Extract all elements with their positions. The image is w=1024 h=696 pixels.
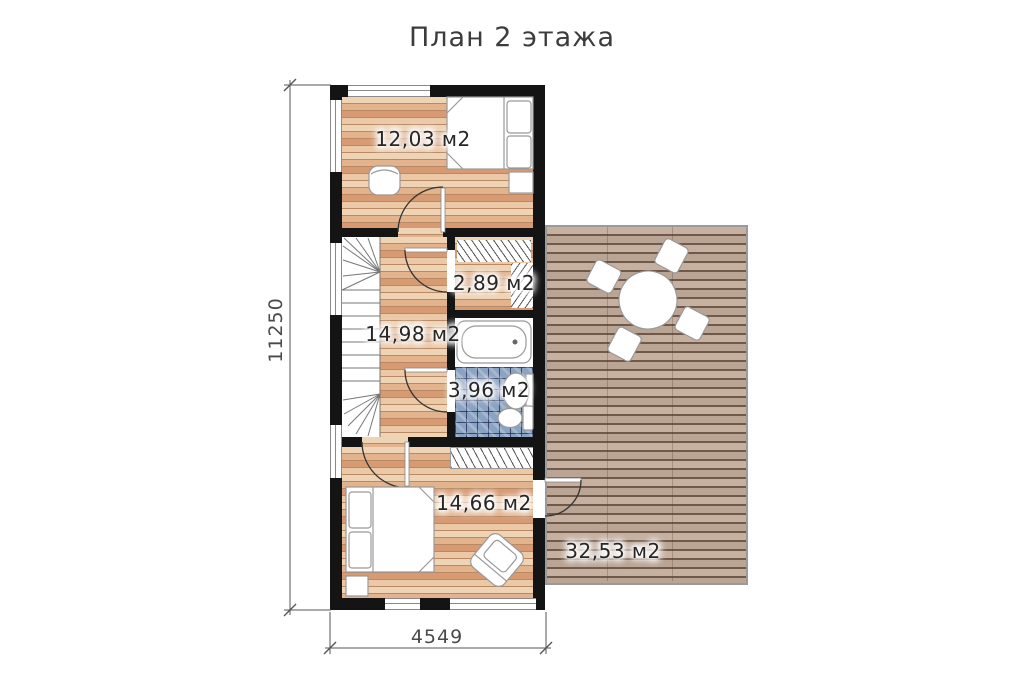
dimension-label-width: 4549: [411, 626, 463, 648]
wall: [430, 85, 545, 97]
deck-seam: [607, 227, 608, 581]
wall: [533, 518, 545, 610]
door-threshold: [362, 437, 408, 447]
wall: [408, 437, 533, 447]
wall: [330, 478, 342, 610]
window: [385, 598, 420, 610]
bathroom-tub-zone: [455, 318, 533, 367]
room-label-terrace: 32,53 м2: [565, 539, 660, 563]
wall: [420, 598, 450, 610]
closet-hatch: [450, 447, 535, 469]
window: [330, 425, 342, 478]
wall: [455, 310, 533, 318]
window: [330, 243, 342, 315]
wall: [447, 237, 455, 250]
wall: [330, 315, 342, 425]
dimension-label-height: 11250: [265, 297, 287, 362]
window: [330, 100, 342, 172]
deck-seam: [672, 227, 673, 581]
wardrobe-rail-hatch: [457, 240, 531, 262]
bedroom-top-floor: [342, 97, 533, 237]
window: [348, 85, 430, 97]
room-label-wardrobe: 2,89 м2: [453, 271, 535, 295]
window: [450, 598, 536, 610]
wall: [330, 85, 342, 100]
room-label-hall: 14,98 м2: [365, 322, 460, 346]
terrace-deck: [545, 225, 748, 585]
wall: [447, 412, 455, 437]
room-label-bedroom-top: 12,03 м2: [375, 127, 470, 151]
bedroom-bottom-floor: [342, 447, 533, 598]
wall: [330, 172, 342, 243]
wall: [443, 228, 533, 237]
room-label-bedroom-bottom: 14,66 м2: [436, 491, 531, 515]
room-label-bathroom: 3,96 м2: [448, 378, 530, 402]
page-title: План 2 этажа: [409, 22, 615, 53]
terrace-door-opening: [533, 480, 545, 518]
floor-plan: План 2 этажа: [0, 0, 1024, 696]
wall: [342, 437, 362, 447]
door-threshold: [398, 228, 443, 237]
wall: [342, 228, 398, 237]
